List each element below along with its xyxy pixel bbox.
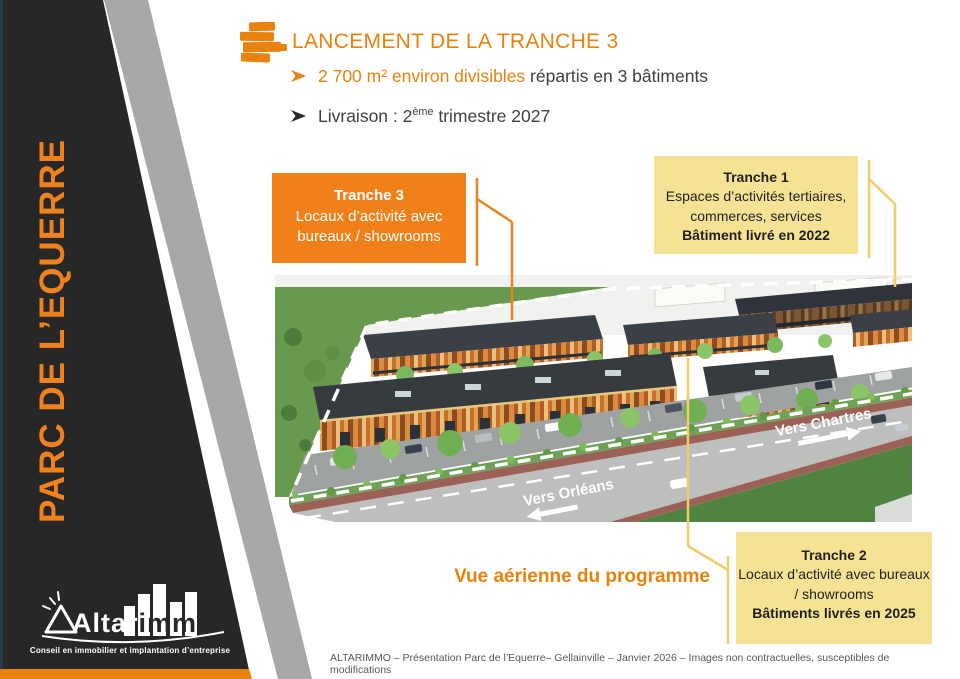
bullet-delivery: Livraison : 2ème trimestre 2027 — [291, 106, 550, 127]
callout-tranche2: Tranche 2 Locaux d’activité avec bureaux… — [736, 532, 932, 644]
bullet-surface-text: 2 700 m² environ divisibles répartis en … — [318, 66, 708, 87]
callout-tranche2-delivery: Bâtiments livrés en 2025 — [736, 604, 932, 623]
logo-text-right: immo — [139, 608, 215, 638]
surface-highlight: 2 700 m² environ divisibles — [318, 66, 525, 86]
bullet-surface: 2 700 m² environ divisibles répartis en … — [291, 66, 708, 87]
bullet-delivery-text: Livraison : 2ème trimestre 2027 — [318, 106, 550, 127]
image-caption: Vue aérienne du programme — [420, 566, 744, 588]
left-edge-line — [0, 0, 3, 670]
delivery-sup: ème — [412, 106, 433, 118]
callout-tranche3: Tranche 3 Locaux d’activité avec bureaux… — [272, 173, 466, 263]
callout-tranche2-title: Tranche 2 — [736, 546, 932, 565]
callout-tranche1-title: Tranche 1 — [654, 168, 858, 187]
logo-tagline: Conseil en immobilier et implantation d’… — [24, 646, 236, 655]
altarimmo-logo: Altarimmo — [28, 580, 236, 644]
arrow-bullet-icon — [291, 69, 306, 83]
project-title-vertical: PARC DE L’EQUERRE — [33, 131, 81, 531]
callout-tranche1-delivery: Bâtiment livré en 2022 — [654, 226, 858, 245]
delivery-post: trimestre 2027 — [433, 106, 550, 126]
svg-text:Altarimmo: Altarimmo — [72, 608, 215, 638]
callout-tranche2-body: Locaux d’activité avec bureaux / showroo… — [736, 565, 932, 604]
callout-tranche1-body: Espaces d’activités tertiaires, commerce… — [654, 187, 858, 226]
callout-tranche3-body: Locaux d’activité avec bureaux / showroo… — [272, 207, 466, 248]
callout-tranche1: Tranche 1 Espaces d’activités tertiaires… — [654, 156, 858, 254]
page-title: LANCEMENT DE LA TRANCHE 3 — [292, 30, 618, 54]
callout-tranche3-title: Tranche 3 — [272, 186, 466, 207]
bottom-orange-strip — [0, 669, 254, 679]
aerial-view-image: Vers Orléans Vers Chartres — [275, 275, 912, 522]
tranche1-connector — [869, 160, 895, 287]
bricks-icon — [238, 22, 288, 66]
logo-sparkle-icon — [43, 592, 59, 609]
footer-text: ALTARIMMO – Présentation Parc de l’Equer… — [330, 652, 910, 676]
surface-rest: répartis en 3 bâtiments — [525, 66, 708, 86]
delivery-pre: Livraison : 2 — [318, 106, 412, 126]
logo-text-left: Altar — [72, 608, 139, 638]
slide: PARC DE L’EQUERRE Altarimmo Conseil en i… — [0, 0, 960, 679]
arrow-bullet-icon — [291, 109, 306, 123]
